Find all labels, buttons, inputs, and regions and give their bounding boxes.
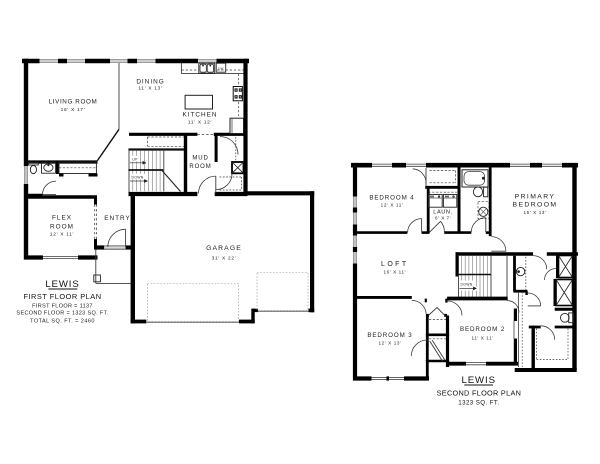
svg-text:11' X 12': 11' X 12' (188, 120, 212, 126)
svg-text:DOWN: DOWN (132, 176, 144, 180)
svg-text:ENTRY: ENTRY (104, 215, 131, 222)
svg-text:LOFT: LOFT (381, 261, 409, 268)
svg-text:DOWN: DOWN (461, 282, 473, 286)
svg-text:LEWIS: LEWIS (45, 279, 79, 290)
svg-text:GARAGE: GARAGE (206, 245, 242, 252)
svg-text:16' X 11': 16' X 11' (383, 270, 406, 275)
svg-text:KITCHEN: KITCHEN (182, 112, 217, 119)
svg-text:BEDROOM: BEDROOM (513, 202, 558, 209)
svg-text:ROOM: ROOM (50, 224, 74, 231)
svg-text:6' X 7': 6' X 7' (435, 215, 451, 220)
svg-text:12' X 11': 12' X 11' (50, 232, 74, 238)
svg-text:31' X 22': 31' X 22' (212, 256, 237, 262)
svg-text:12' X 11': 12' X 11' (381, 203, 404, 208)
svg-text:FIRST FLOOR PLAN: FIRST FLOOR PLAN (23, 292, 101, 301)
svg-text:DINING: DINING (136, 79, 164, 86)
svg-text:11' X 11': 11' X 11' (471, 336, 493, 341)
svg-text:MUD: MUD (192, 156, 208, 162)
svg-text:LEWIS: LEWIS (462, 375, 496, 386)
svg-text:TOTAL SQ. FT. = 2460: TOTAL SQ. FT. = 2460 (30, 318, 95, 324)
svg-text:UP: UP (132, 158, 138, 162)
svg-text:PRIMARY: PRIMARY (515, 194, 556, 201)
svg-text:DW: DW (218, 67, 223, 71)
svg-text:SECOND FLOOR PLAN: SECOND FLOOR PLAN (437, 389, 522, 398)
svg-text:SECOND FLOOR = 1323 SQ. FT.: SECOND FLOOR = 1323 SQ. FT. (16, 311, 108, 317)
svg-text:BEDROOM 4: BEDROOM 4 (369, 195, 414, 202)
svg-text:11' X 13': 11' X 13' (138, 86, 162, 92)
svg-text:12' X 13': 12' X 13' (379, 341, 402, 346)
svg-text:1323 SQ. FT.: 1323 SQ. FT. (458, 399, 499, 406)
svg-text:FIRST FLOOR = 1137: FIRST FLOOR = 1137 (32, 303, 93, 309)
svg-text:FLEX: FLEX (52, 215, 72, 222)
svg-text:LIVING ROOM: LIVING ROOM (49, 99, 98, 106)
svg-text:15' X 13': 15' X 13' (524, 210, 547, 215)
svg-text:BEDROOM 2: BEDROOM 2 (460, 326, 505, 333)
svg-text:ROOM: ROOM (189, 164, 211, 170)
svg-text:16' X 17': 16' X 17' (61, 107, 86, 113)
svg-text:BEDROOM 3: BEDROOM 3 (367, 332, 412, 339)
